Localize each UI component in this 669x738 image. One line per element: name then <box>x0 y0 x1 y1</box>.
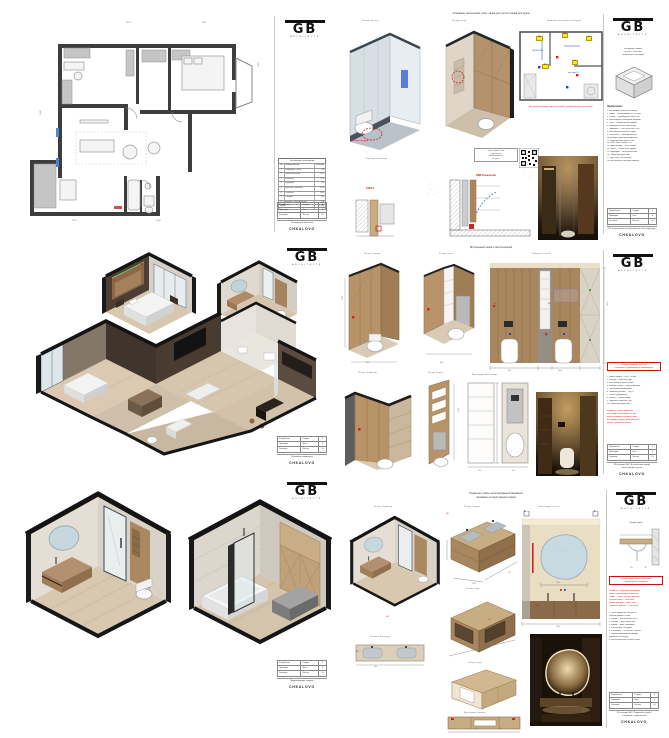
view-label: Раковина. Вид сверху <box>370 636 390 639</box>
titleblock-row: Разработал Стадия Р <box>277 202 327 207</box>
notes-red: Внимание! Унитаз подвесной,ось вывода ка… <box>607 410 659 425</box>
wc-iso-front <box>341 258 413 370</box>
room-name: Детская / Кабинет <box>285 187 316 191</box>
dim-label: 520 <box>630 568 633 570</box>
sheet-name: Планировка мебелью <box>277 220 327 225</box>
view-label: 3D вид. Сбоку <box>439 253 453 256</box>
purple-label: вент. люк <box>556 291 563 293</box>
notes-list: 1. Все размеры уточнять по месту.2. Коро… <box>607 110 659 163</box>
plumbing-tag: В-1 <box>562 33 568 38</box>
plan-warning: Все розетки и выводы воды согласовать с … <box>518 106 604 109</box>
dim-label: 4250 <box>258 62 261 67</box>
dim-label: 600 <box>440 362 443 364</box>
wc-wall-elevation <box>488 259 610 377</box>
titlebar-divider <box>606 490 607 728</box>
notes-red: Раковина — искусственный камень,литая, с… <box>609 590 661 608</box>
titlebar-divider <box>603 250 604 474</box>
wc-iso-side <box>418 258 488 370</box>
gb-architects-logo: GB ARCHITECTS <box>285 20 325 38</box>
room-name: Прихожая / холл <box>285 169 316 173</box>
drawing-set-canvas: GB ARCHITECTS <box>0 0 669 738</box>
titleblock: РазработалСтадияРПроверилЛист6ЗаказчикЛи… <box>609 692 659 724</box>
dim-label: 900 <box>202 22 206 25</box>
room-name: Спальня <box>285 178 316 182</box>
room-area: 4,2 <box>315 182 325 186</box>
sheet-axonometric: GB ARCHITECTS <box>6 244 332 476</box>
room-area: 10,5 <box>315 192 325 196</box>
room-area: 11,8 <box>315 178 325 182</box>
bathroom-iso-small <box>344 511 446 619</box>
col-area: Площадь <box>315 164 325 168</box>
titleblock: РазработалСтадияРПроверилЛист6ЗаказчикЛи… <box>607 444 657 476</box>
sheet-wc-cabinet: Встроенный шкаф с инсталляцией 3D вид. С… <box>336 242 663 478</box>
schedule-rows: 1 Прихожая / холл 5,6 2 Кухня-гостиная 1… <box>278 168 326 205</box>
section-marker: B <box>594 511 596 514</box>
note-line: см. узел 2 <box>476 158 516 161</box>
plan-detail-drawing <box>516 26 606 104</box>
dim-label: 1350 <box>556 582 560 584</box>
dim-label: 2070 <box>342 296 344 300</box>
dim-label: 1400 <box>498 728 502 730</box>
view-label: 3D вид. Спереди <box>464 506 480 509</box>
dim-label: 520 <box>508 572 511 574</box>
view-label: 3D вид. Сзади <box>466 588 479 591</box>
uzel-detail-drawing <box>352 194 398 238</box>
room-area: 4,9 <box>315 196 325 200</box>
sheet-name: 3D санузел №1. Встроенный шкаф, инсталля… <box>607 462 657 470</box>
plumbing-tag: ТП-1 <box>536 36 543 41</box>
red-callout: Смеситель гиг. душа <box>350 140 368 142</box>
view-label: 3D вид. Разрез <box>428 372 443 375</box>
schedule-row: 3 Спальня 11,8 <box>278 177 326 182</box>
red-warning-box: Размеры проверить по месту!Согласовать с… <box>607 362 661 371</box>
view-label: 3D вид. Спереди <box>364 253 380 256</box>
schedule-row: 7 Санузел 4,9 <box>278 195 326 200</box>
dim-label: 900 <box>508 370 511 372</box>
room-name: Гардероб <box>285 182 316 186</box>
render-photo-mirror <box>530 634 602 726</box>
titleblock-row: Заказчик Листов 10 <box>277 212 327 218</box>
gb-architects-logo: GB ARCHITECTS <box>613 18 653 36</box>
titleblock: Разработал Стадия Р Проверил Лист 6 Зака… <box>277 202 327 231</box>
red-dim: 520 <box>574 606 577 608</box>
iso-view-mirror <box>342 24 437 159</box>
sheet-bathroom-viz: GB ARCHITECTS <box>6 480 332 732</box>
view-label: Развертка. Стена В <box>532 253 551 256</box>
sheet-title: Основные технические узлы: шкаф для гост… <box>391 12 591 15</box>
wc-iso-section <box>421 376 461 474</box>
pdf-label: ПДФ Технология <box>476 174 496 177</box>
red-dim: 230 <box>548 304 551 306</box>
view-label: 3D вид, зеркало <box>362 20 378 23</box>
dim-label: 6240 <box>40 110 43 115</box>
detail-label: Разрез тумбы <box>616 522 656 525</box>
schedule-row: 6 Спальня 10,5 <box>278 191 326 196</box>
plumbing-tag: ТП-2 <box>542 64 549 69</box>
schedule-row: 1 Прихожая / холл 5,6 <box>278 168 326 173</box>
titlebar-divider <box>274 16 275 232</box>
red-dim: 180 <box>446 514 449 516</box>
sheet-title-line2: основание из искусственного камня <box>396 496 596 499</box>
view-label: Вид спереди. Размеры <box>464 712 485 715</box>
installation-elevation <box>464 379 534 471</box>
dim-label: 2160 <box>458 408 460 412</box>
plan-detail-title: Привязки сантехники и электрики <box>524 20 604 23</box>
sheet-name: 3D санузел №2. Подвесная тумба и зеркало… <box>609 710 659 718</box>
qr-code <box>519 148 539 168</box>
dim-label: 3870 <box>126 22 131 25</box>
dim-label: 2400 <box>156 220 161 223</box>
view-label: 3D вид. Общий вид <box>374 506 392 509</box>
sheet-title: Встроенный шкаф с инсталляцией <box>401 246 581 249</box>
vanity-front-elevation <box>444 716 526 734</box>
plumbing-tag: Р-2 <box>586 36 592 41</box>
vanity-iso-front <box>443 510 521 586</box>
dim-label: 1350 <box>472 583 476 585</box>
titleblock: РазработалСтадияРПроверилЛист6ЗаказчикЛи… <box>607 208 657 237</box>
room-name: Санузел <box>285 196 316 200</box>
red-dim: 600 <box>356 652 359 654</box>
logo-letters: GB <box>285 24 325 35</box>
project-name: CHKALOVO <box>607 233 657 237</box>
room-area: 16,7 <box>315 173 325 177</box>
bathroom-iso-tub <box>184 488 334 663</box>
mirror-wall-elevation <box>518 511 604 629</box>
project-name: CHKALOVO <box>277 227 327 231</box>
render-photo-shower <box>538 156 598 240</box>
gb-architects-logo: GB ARCHITECTS <box>613 254 653 272</box>
notes-black: 1. Каркас шкафа — ЛДСП 18 мм.2. Фасады —… <box>607 376 659 406</box>
dim-label: 900 <box>366 362 369 364</box>
notes-title: Примечания: <box>607 105 623 108</box>
dim-label: 520 <box>512 470 515 472</box>
view-label: 3D вид. Каркас <box>468 662 482 665</box>
schedule-row: 4 Гардероб 4,2 <box>278 181 326 186</box>
box-detail-drawing <box>610 62 656 102</box>
vanity-section-detail <box>614 527 662 567</box>
iso-view-side <box>440 22 520 152</box>
schedule-header: № Наименование Площадь <box>278 163 326 168</box>
col-name: Наименование <box>285 164 316 168</box>
sheet-name: Объемная изометрия <box>277 454 327 459</box>
red-warning-box: Цвет фасадов и камня согласоватьс дизайн… <box>609 576 663 585</box>
notes-black: 1. Тумба подвесная, монтаж наскрытый кре… <box>609 612 661 642</box>
dim-label: 1520 <box>72 220 77 223</box>
titlebar-divider <box>603 14 604 234</box>
room-area: 15,4 <box>315 187 325 191</box>
red-dim: 300 <box>494 304 497 306</box>
schedule-row: 5 Детская / Кабинет 15,4 <box>278 186 326 191</box>
gb-architects-logo: GB ARCHITECTS <box>616 492 656 510</box>
view-label: Вид спереди. Инсталляция <box>472 374 497 377</box>
mirror-note: Зеркало сложнойформы с подсветкойпо конт… <box>548 546 574 553</box>
floor-plan-drawing <box>20 20 270 228</box>
dim-label: 460 <box>374 666 377 668</box>
dim-label: 1400 <box>556 626 560 628</box>
column-caption: Инструкция к коробуиз ЛДСП 18 мм присамо… <box>608 48 658 57</box>
logo-subtitle: ARCHITECTS <box>285 36 325 38</box>
titleblock: РазработалСтадияРПроверилЛист6ЗаказчикЛи… <box>277 436 327 465</box>
red-dim: 600 <box>536 606 539 608</box>
wc-iso-overview <box>341 376 419 474</box>
room-area: 5,6 <box>315 169 325 173</box>
section-detail-drawing <box>442 178 537 238</box>
room-name: Кухня-гостиная <box>285 173 316 177</box>
sheet-name: Визуализация санузла <box>277 678 327 683</box>
red-dim: 560 <box>488 620 491 622</box>
view-label: Вид спереди. Стена Б <box>539 506 559 509</box>
titleblock-row: Проверил Лист 6 <box>277 207 327 212</box>
sheet-floor-plan: GB ARCHITECTS <box>6 6 332 238</box>
sheet-tech-nodes: Основные технические узлы: шкаф для гост… <box>336 6 663 238</box>
sheet-vanity: Подвесная тумба с интегрированной ракови… <box>336 484 663 734</box>
project-name: CHKALOVO <box>607 472 657 476</box>
contact-line: По всем вопросам обращаться к конструкто… <box>607 226 657 231</box>
dim-label: 2070 <box>607 302 609 306</box>
red-dim: 590 <box>458 626 461 628</box>
sink-topview <box>350 641 432 669</box>
project-name: CHKALOVO <box>277 461 327 465</box>
blue-note: выв. воды 1/2 <box>568 72 579 74</box>
section-marker: B <box>524 511 526 514</box>
dim-label: 450 <box>478 470 481 472</box>
vanity-iso-back <box>443 592 521 662</box>
room-name: Спальня <box>285 192 316 196</box>
view-label: 3D вид. Общий вид <box>358 372 377 375</box>
titleblock: РазработалСтадияРПроверилЛист6ЗаказчикЛи… <box>277 660 327 689</box>
schedule-row: 2 Кухня-гостиная 16,7 <box>278 172 326 177</box>
sheet-title-line1: Подвесная тумба с интегрированной ракови… <box>396 492 596 495</box>
dim-label: 1350 <box>474 728 478 730</box>
bathroom-iso-vanity <box>16 486 181 656</box>
blue-note: ГВС/ХВС Ø16 <box>532 50 543 52</box>
dim-label: 1000 <box>558 370 562 372</box>
uzel-label: УЗЕЛ 2 <box>366 187 374 190</box>
plumbing-tag: Р-1 <box>572 60 578 65</box>
red-dim: 900 <box>386 616 389 618</box>
note-box: Короб зашить ГКЛВв два слоя пометаллокар… <box>474 148 518 162</box>
note-line: 18. Монтаж после чистовой отделки. <box>607 160 659 163</box>
project-name: CHKALOVO <box>277 685 327 689</box>
callout: Короб для инсталляции <box>366 158 387 160</box>
titleblock-rows: Разработал Стадия Р Проверил Лист 6 Зака… <box>277 202 327 219</box>
project-name: CHKALOVO <box>609 720 659 724</box>
vanity-iso-frame <box>446 666 521 712</box>
render-photo-wc <box>536 392 598 476</box>
dim-label: 150 <box>644 568 647 570</box>
section-labels: Профиль 20х20 ммКерамогранит 10 ммКлей С… <box>400 182 442 197</box>
